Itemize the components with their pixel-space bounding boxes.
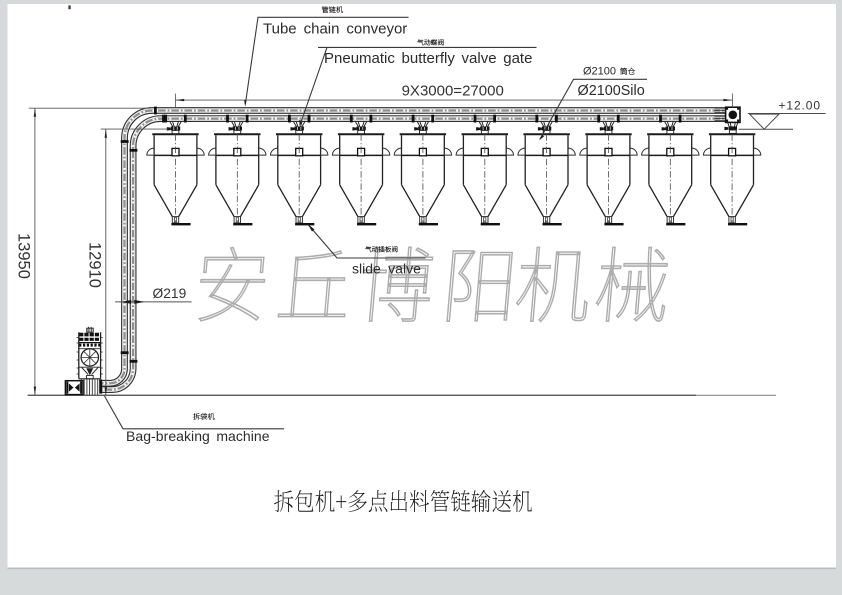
svg-text:+12.00: +12.00 bbox=[779, 98, 821, 112]
svg-text:slide valve: slide valve bbox=[352, 260, 421, 276]
svg-text:Bag-breaking machine: Bag-breaking machine bbox=[126, 428, 270, 444]
svg-text:12910: 12910 bbox=[86, 242, 104, 288]
svg-text:9X3000=27000: 9X3000=27000 bbox=[402, 83, 504, 100]
svg-text:13950: 13950 bbox=[15, 233, 33, 279]
svg-text:Ø219: Ø219 bbox=[153, 286, 187, 301]
svg-text:Ø2100: Ø2100 bbox=[583, 65, 616, 77]
svg-text:Pneumatic butterfly valve gate: Pneumatic butterfly valve gate bbox=[324, 50, 532, 67]
svg-text:Tube chain conveyor: Tube chain conveyor bbox=[263, 20, 407, 37]
svg-text:Ø2100Silo: Ø2100Silo bbox=[578, 83, 645, 99]
